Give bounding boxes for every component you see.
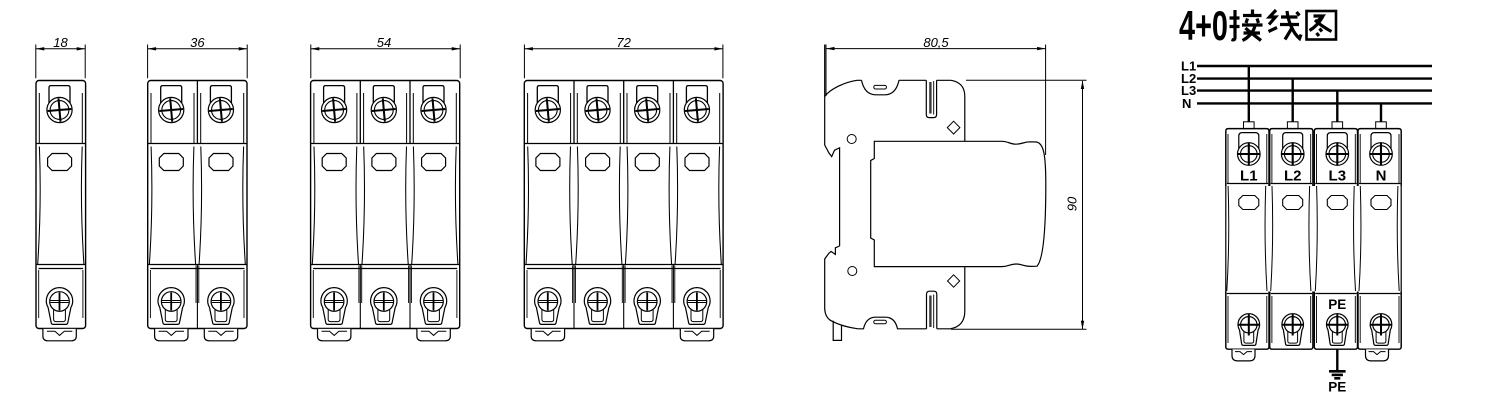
svg-text:N: N	[1376, 168, 1387, 185]
svg-text:4+0: 4+0	[1179, 2, 1228, 49]
svg-text:PE: PE	[1328, 297, 1346, 312]
svg-text:90: 90	[1065, 196, 1080, 211]
svg-text:L1: L1	[1240, 168, 1258, 185]
svg-text:54: 54	[377, 35, 391, 50]
svg-text:72: 72	[616, 35, 631, 50]
svg-text:PE: PE	[1328, 380, 1346, 395]
svg-text:36: 36	[190, 35, 205, 50]
svg-text:80,5: 80,5	[923, 35, 949, 50]
svg-text:L2: L2	[1284, 168, 1302, 185]
svg-text:L3: L3	[1329, 168, 1347, 185]
svg-text:N: N	[1182, 96, 1191, 111]
svg-text:18: 18	[53, 35, 68, 50]
